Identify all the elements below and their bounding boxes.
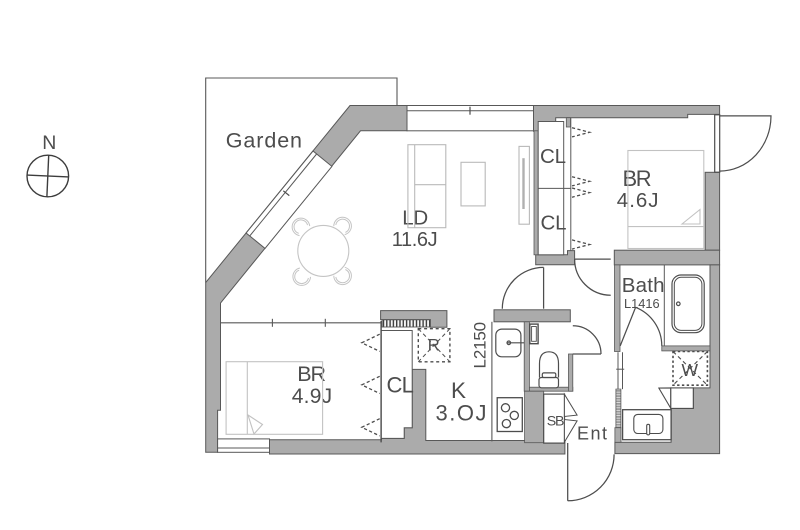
svg-text:Bath: Bath: [622, 274, 665, 297]
svg-text:K: K: [451, 378, 466, 403]
svg-text:4.9J: 4.9J: [292, 385, 333, 408]
svg-text:CL: CL: [541, 211, 567, 234]
svg-text:CL: CL: [387, 372, 414, 397]
svg-text:BR: BR: [623, 166, 651, 191]
svg-text:N: N: [42, 132, 56, 154]
svg-text:L2150: L2150: [471, 322, 490, 368]
svg-text:W: W: [682, 360, 699, 380]
svg-text:3.OJ: 3.OJ: [436, 400, 488, 425]
svg-text:Ent: Ent: [577, 424, 609, 444]
svg-text:BR: BR: [297, 362, 325, 386]
svg-text:L1416: L1416: [624, 296, 660, 311]
svg-text:R: R: [428, 336, 440, 354]
svg-text:Garden: Garden: [226, 129, 303, 153]
svg-text:SB: SB: [547, 414, 564, 430]
svg-text:11.6J: 11.6J: [392, 229, 437, 251]
svg-text:CL: CL: [540, 145, 566, 168]
svg-text:4.6J: 4.6J: [617, 189, 660, 212]
